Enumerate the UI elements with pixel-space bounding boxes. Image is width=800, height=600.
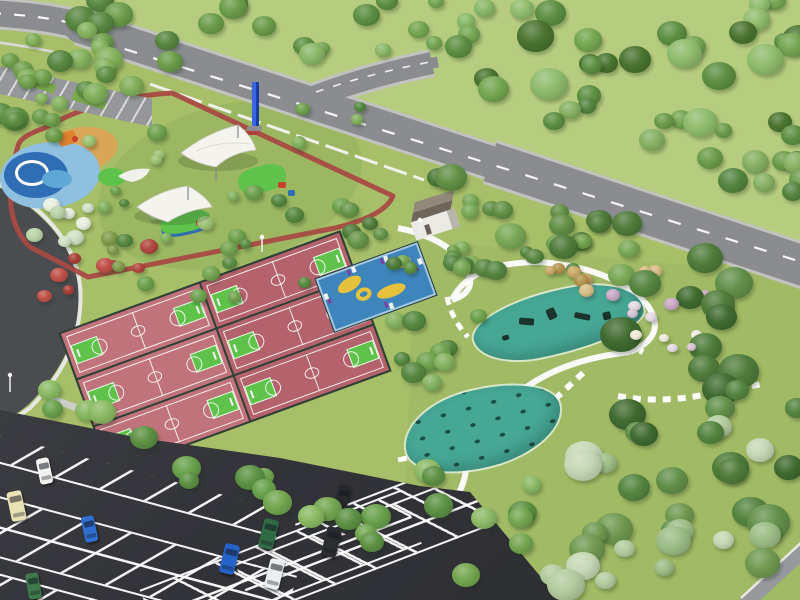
backboard xyxy=(323,293,329,300)
climbing-structure xyxy=(545,307,558,321)
car-blue-van xyxy=(218,543,240,576)
play-equipment-red2 xyxy=(196,220,203,226)
splash-stream xyxy=(42,170,72,188)
play-equipment-red xyxy=(278,182,286,188)
backboard xyxy=(389,302,395,309)
car-white-car xyxy=(35,457,53,485)
climbing-structure xyxy=(501,335,509,341)
backboard xyxy=(383,255,389,262)
park-rendering xyxy=(0,0,800,600)
splash-pad xyxy=(0,126,134,224)
climbing-structure xyxy=(574,312,591,321)
play-structure xyxy=(72,136,78,142)
car-white-van xyxy=(263,558,285,591)
picnic-area xyxy=(396,370,571,487)
court-graphic xyxy=(391,254,412,270)
red-bench xyxy=(243,131,258,135)
car-blue-car xyxy=(80,515,98,543)
hoop-post xyxy=(414,265,419,272)
backboard xyxy=(351,266,357,273)
climbing-structure xyxy=(602,311,612,321)
small-parking-lot xyxy=(0,52,152,130)
car-black-car xyxy=(332,484,352,513)
car-cream-van xyxy=(6,490,27,522)
car-black-suv xyxy=(320,526,342,559)
car-green-car xyxy=(24,572,41,600)
court-graphic xyxy=(375,281,407,303)
hoop-post xyxy=(384,301,389,308)
climbing-structure xyxy=(519,317,535,325)
play-equipment-blue xyxy=(288,190,295,196)
park-building xyxy=(395,181,473,252)
car-green-van xyxy=(257,518,279,551)
backboard xyxy=(416,258,422,265)
rubber-surface-patch xyxy=(98,168,126,186)
playground-surface-2 xyxy=(158,207,211,237)
court-graphic-ring xyxy=(354,285,373,303)
adventure-play-area xyxy=(467,272,649,371)
entrance-sign xyxy=(252,82,259,128)
playground-surface-1 xyxy=(236,161,289,198)
